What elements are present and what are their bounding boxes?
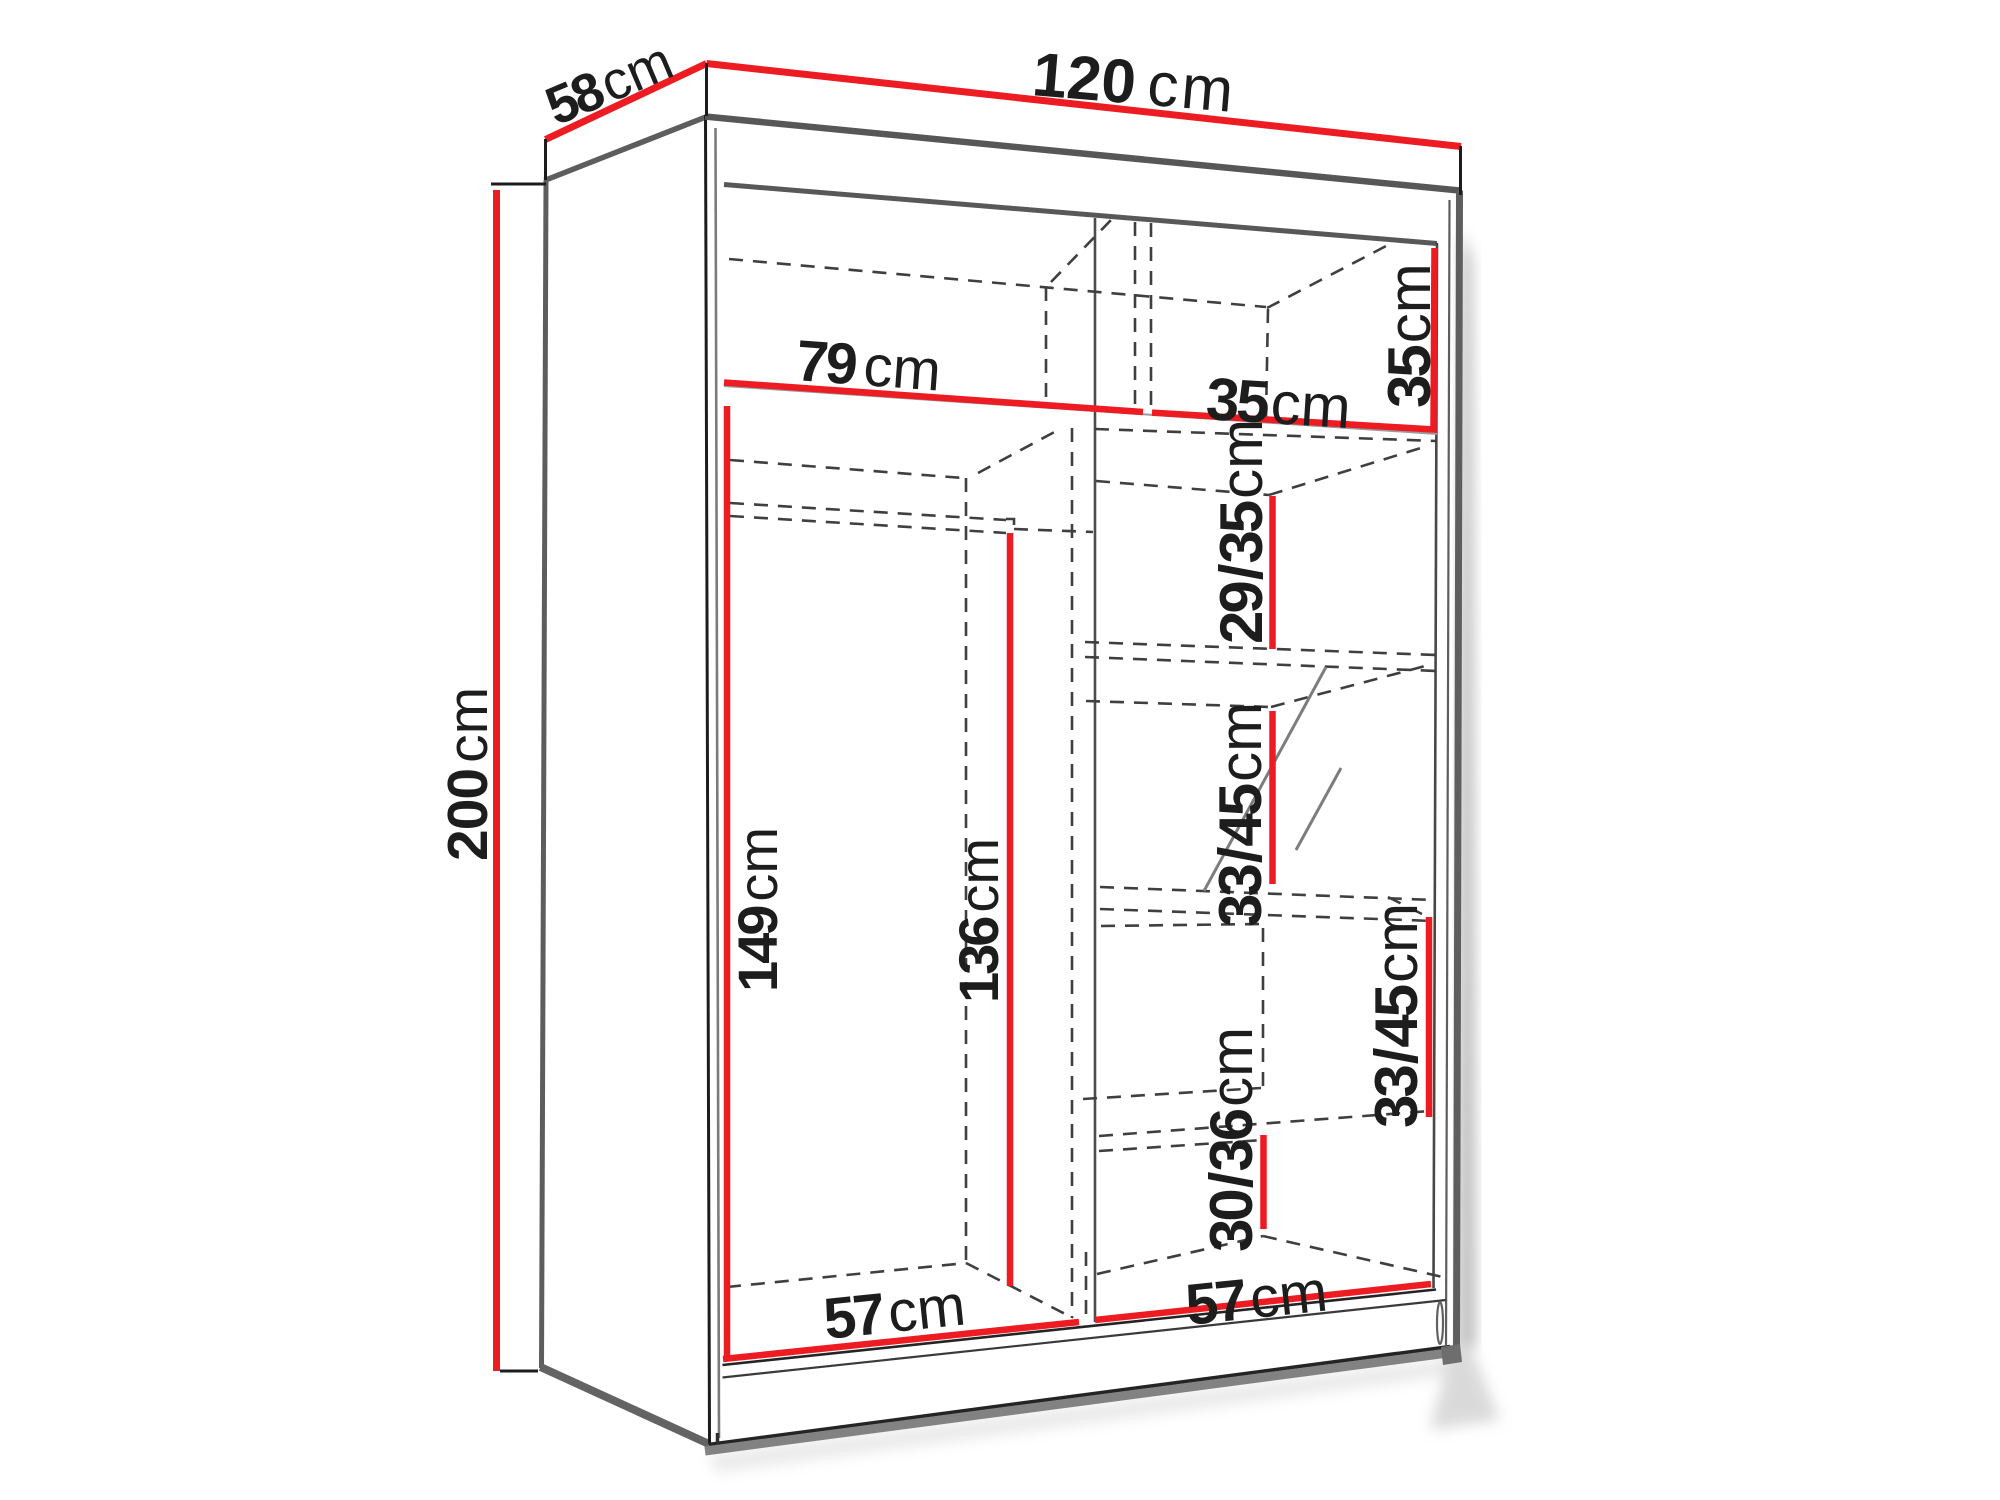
svg-text:33/45cm: 33/45cm [1363, 903, 1430, 1128]
svg-text:29/35cm: 29/35cm [1208, 419, 1275, 644]
svg-text:30/36cm: 30/36cm [1198, 1027, 1265, 1252]
svg-text:200cm: 200cm [436, 687, 500, 861]
svg-text:35cm: 35cm [1376, 263, 1443, 408]
svg-text:149cm: 149cm [726, 827, 789, 992]
svg-text:33/45cm: 33/45cm [1207, 702, 1274, 927]
svg-text:136cm: 136cm [947, 838, 1010, 1003]
svg-text:79cm: 79cm [794, 328, 943, 403]
